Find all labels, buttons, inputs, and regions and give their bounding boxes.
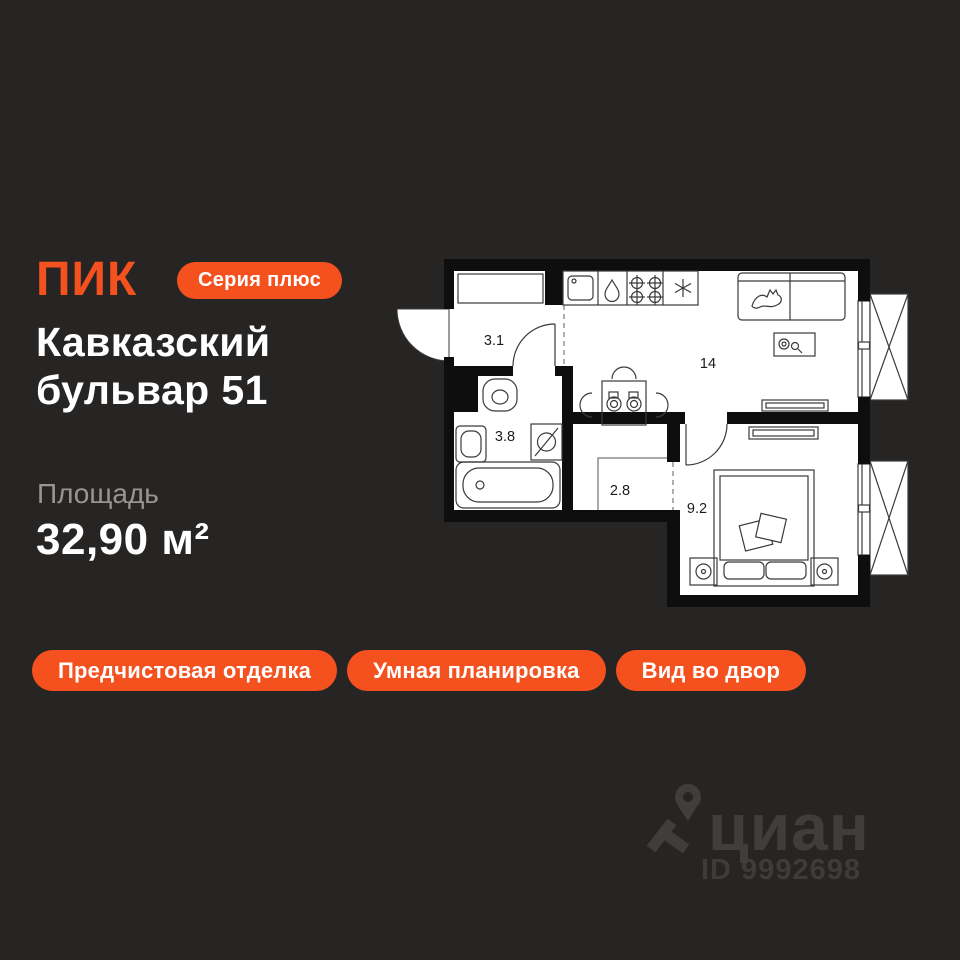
bed bbox=[714, 470, 814, 586]
window-handle-icon bbox=[859, 342, 870, 349]
label-hallway: 3.1 bbox=[484, 333, 504, 349]
cian-watermark: циан ID 9992698 bbox=[651, 784, 870, 886]
window-handle-icon bbox=[859, 505, 870, 512]
listing-card: ПИК Серия плюс Кавказский бульвар 51 Пло… bbox=[0, 0, 960, 960]
label-kitchen-living: 14 bbox=[700, 356, 716, 372]
pillow bbox=[766, 562, 806, 579]
cian-brand-text: циан bbox=[708, 790, 870, 864]
label-bathroom: 3.8 bbox=[495, 429, 515, 445]
label-wardrobe: 2.8 bbox=[610, 483, 630, 499]
sofa bbox=[738, 273, 845, 320]
label-bedroom: 9.2 bbox=[687, 501, 707, 517]
listing-id: ID 9992698 bbox=[701, 854, 861, 886]
cian-logo-icon bbox=[651, 784, 701, 849]
entry-door-swing bbox=[397, 309, 449, 361]
pillow bbox=[724, 562, 764, 579]
floor-plan: 3.1 3.8 14 2.8 9.2 циан ID 9992698 bbox=[0, 0, 960, 960]
